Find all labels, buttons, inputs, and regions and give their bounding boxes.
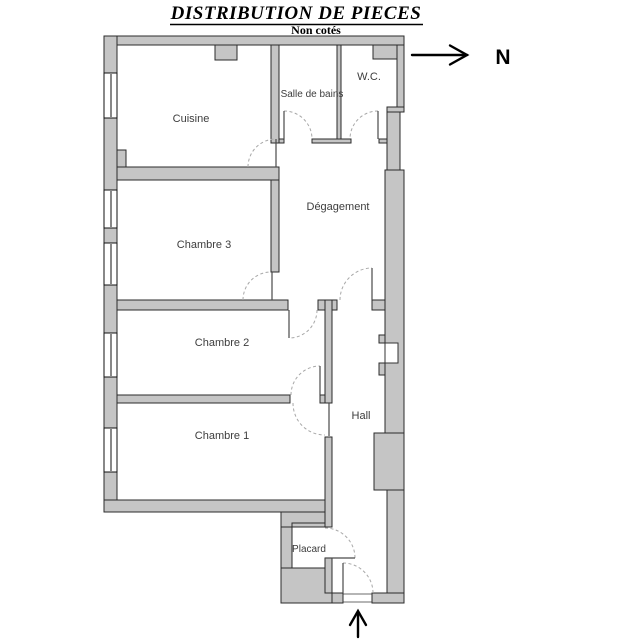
wall-degagement-left xyxy=(271,180,279,272)
wall-chambre1-2-divider xyxy=(117,395,290,403)
wall-hall-left-lower xyxy=(325,558,332,593)
wall-right-mid xyxy=(385,170,404,433)
door-wc xyxy=(350,111,378,139)
window-cuisine xyxy=(104,73,117,118)
wall-right-upper xyxy=(387,112,400,170)
door-placard xyxy=(325,528,355,558)
wall-placard-left xyxy=(281,527,292,568)
wall-placard-bottom-block xyxy=(281,568,332,603)
floor-plan-page: DISTRIBUTION DE PIECES Non cotés N xyxy=(0,0,640,643)
wall-right-tab-b xyxy=(379,363,385,375)
wall-chambre1-2-stub xyxy=(320,395,325,403)
wall-placard-top xyxy=(292,523,325,527)
wall-cuisine-right xyxy=(271,45,279,143)
wall-right-bulge xyxy=(374,433,404,490)
window-chambre2 xyxy=(104,333,117,377)
door-chambre2-top xyxy=(289,310,317,338)
wall-niche xyxy=(385,343,398,363)
wall-hall-left-mid xyxy=(325,437,332,527)
wall-bottom-entry-right xyxy=(372,593,404,603)
door-chambre2-divider xyxy=(291,366,320,395)
room-label-chambre1: Chambre 1 xyxy=(195,430,249,442)
room-label-hall: Hall xyxy=(352,410,371,422)
wall-bottom-entry-left xyxy=(332,593,343,603)
door-degagement-hall xyxy=(340,268,372,300)
exterior-walls xyxy=(104,36,404,603)
plan-header: DISTRIBUTION DE PIECES Non cotés xyxy=(170,3,423,37)
window-chambre3-b xyxy=(104,243,117,285)
wall-mid-horizontal-c xyxy=(372,300,385,310)
wall-top-notch xyxy=(215,45,237,60)
room-label-cuisine: Cuisine xyxy=(173,113,210,125)
wall-mid-horizontal-a xyxy=(117,300,288,310)
wall-right-step xyxy=(387,107,404,112)
page-title: DISTRIBUTION DE PIECES xyxy=(170,3,422,24)
door-chambre3 xyxy=(243,272,272,300)
wall-sdb-bottom-b xyxy=(312,139,351,143)
room-label-chambre3: Chambre 3 xyxy=(177,239,231,251)
wall-sdb-bottom-a xyxy=(279,139,284,143)
room-label-degagement: Dégagement xyxy=(307,201,370,213)
room-label-placard: Placard xyxy=(292,544,326,555)
door-salle-de-bains xyxy=(284,111,312,139)
room-labels: Cuisine Salle de bains W.C. Dégagement C… xyxy=(173,71,381,555)
window-chambre1 xyxy=(104,428,117,472)
wall-hall-left-upper xyxy=(325,300,332,403)
wall-bottom-chambre1 xyxy=(104,500,332,512)
north-label: N xyxy=(495,46,510,69)
north-arrow: N xyxy=(412,46,511,70)
window-chambre3-a xyxy=(104,190,117,228)
room-label-wc: W.C. xyxy=(357,71,381,83)
wall-wc-corner-notch xyxy=(373,45,397,59)
entrance-arrow xyxy=(350,611,366,637)
wall-right-tab-a xyxy=(379,335,385,343)
door-entrance xyxy=(343,563,373,593)
wall-cuisine-chambre3 xyxy=(117,167,279,180)
wall-right-wc xyxy=(397,45,404,112)
door-chambre1 xyxy=(293,403,329,436)
room-label-chambre2: Chambre 2 xyxy=(195,337,249,349)
wall-top xyxy=(104,36,404,45)
wall-wc-bottom xyxy=(379,139,387,143)
room-label-salle-de-bains: Salle de bains xyxy=(281,89,344,100)
floor-plan-svg: DISTRIBUTION DE PIECES Non cotés N xyxy=(0,0,640,643)
wall-right-lower xyxy=(387,490,404,603)
page-subtitle: Non cotés xyxy=(291,23,341,37)
